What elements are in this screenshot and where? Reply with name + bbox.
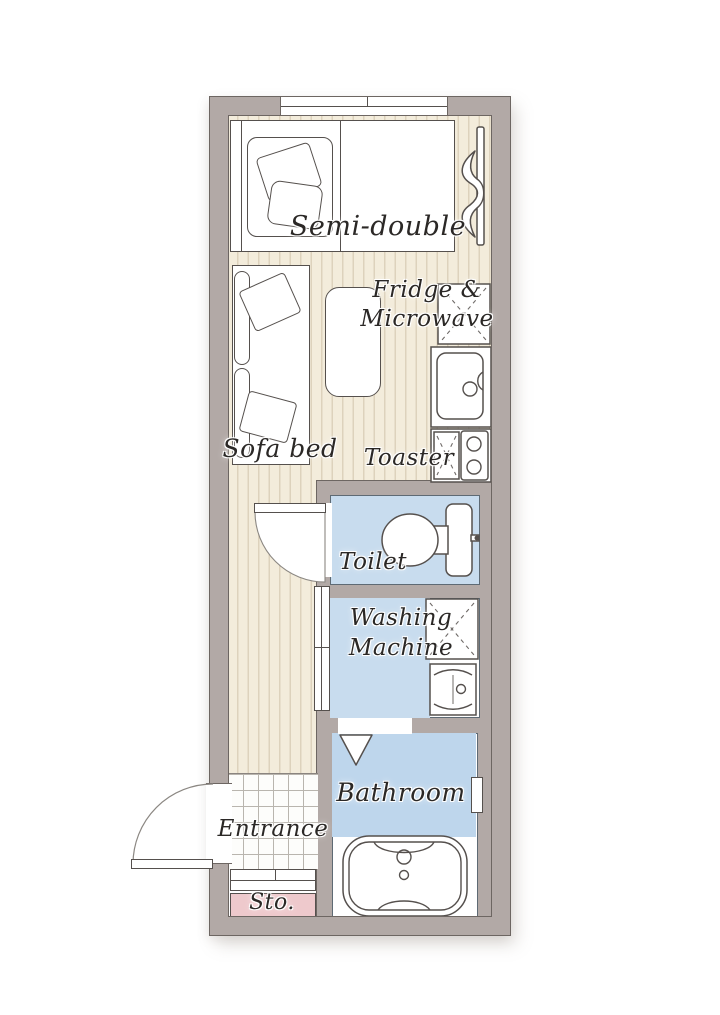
fridge-label: Fridge & Microwave <box>352 276 502 334</box>
headboard-line <box>241 121 242 251</box>
bathroom-doorway <box>338 718 412 734</box>
bed-label: Semi-double <box>268 210 488 244</box>
kitchen-sink <box>430 346 492 428</box>
bathroom-label: Bathroom <box>330 777 472 808</box>
fridge-label-line2: Microwave <box>352 305 502 334</box>
entrance-label: Entrance <box>204 815 342 844</box>
bathtub <box>340 833 472 919</box>
entrance-door <box>131 859 213 869</box>
washing-sliding-door <box>314 586 330 711</box>
fridge-label-line1: Fridge & <box>352 276 502 305</box>
toaster-label: Toaster <box>350 444 468 473</box>
floor-plan: Semi-double Fridge & Microwave Sofa bed … <box>0 0 720 1015</box>
window <box>280 96 448 116</box>
bathroom-wall-niche <box>471 777 483 813</box>
toilet-label: Toilet <box>314 548 432 577</box>
vanity-sink <box>428 661 478 718</box>
washing-label: Washing Machine <box>330 603 472 664</box>
shoe-rack <box>230 869 316 891</box>
toilet-door <box>254 503 326 513</box>
storage-label: Sto. <box>228 889 316 917</box>
washing-label-line1: Washing <box>330 603 472 633</box>
washing-label-line2: Machine <box>330 633 472 663</box>
bathroom-door <box>332 733 392 773</box>
sofa-back-cushion <box>234 271 250 365</box>
sofa-label: Sofa bed <box>214 433 346 464</box>
